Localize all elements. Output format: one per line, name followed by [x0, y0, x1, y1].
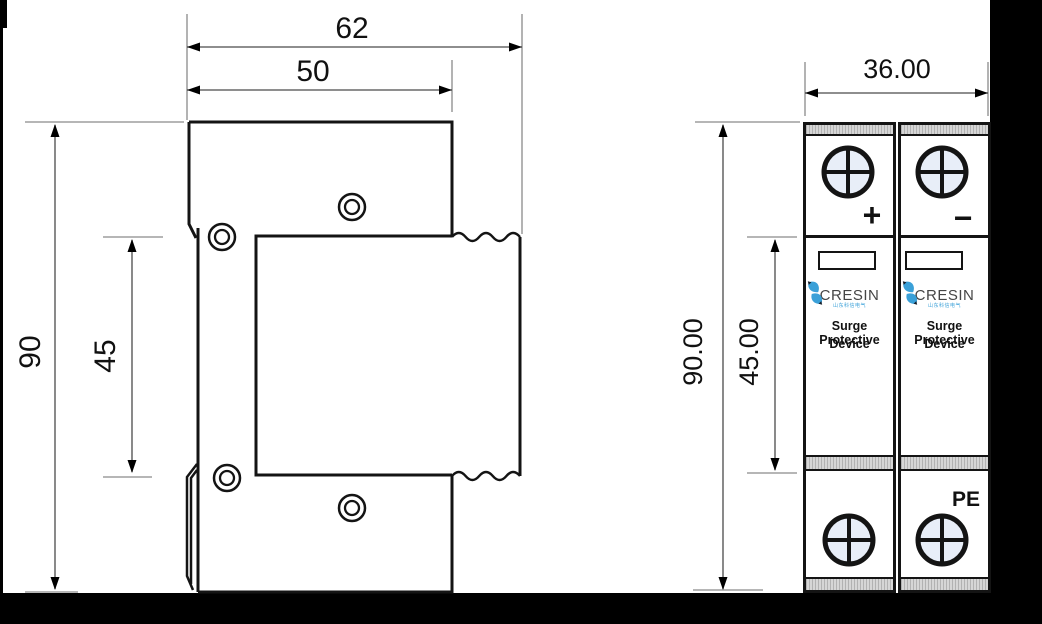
brand-subtext: 山东科信电气	[928, 304, 961, 309]
pe-terminal-label: PE	[952, 488, 980, 512]
dim-label-45-front: 45.00	[734, 318, 764, 386]
terminal-screw-icon	[821, 512, 877, 568]
status-window	[818, 251, 876, 270]
module-release-strip	[901, 455, 988, 471]
brand-name: CRESIN	[820, 288, 880, 303]
section-divider	[901, 235, 988, 238]
side-din-clip-inner	[191, 470, 197, 584]
dim-label-90-side: 90	[14, 335, 47, 368]
side-screw-top-right	[339, 194, 365, 220]
polarity-minus-label: −	[949, 202, 977, 234]
side-screw-top-left	[209, 224, 235, 250]
section-divider	[806, 235, 893, 238]
module-release-strip	[806, 455, 893, 471]
side-screw-bottom-right	[339, 495, 365, 521]
dim-label-62: 62	[335, 12, 368, 45]
terminal-screw-icon	[914, 144, 970, 200]
polarity-plus-label: +	[858, 199, 886, 231]
side-view: 62 50 90 45	[14, 12, 522, 592]
device-label-line2: Device	[806, 337, 893, 351]
dim-label-36: 36.00	[863, 54, 931, 84]
side-screw-bottom-left	[214, 465, 240, 491]
brand-block: CRESIN 山东科信电气	[901, 280, 988, 316]
side-body-top-rect	[189, 122, 452, 236]
side-left-edge-hook	[189, 122, 196, 238]
brand-subtext: 山东科信电气	[833, 304, 866, 309]
spd-module-plus: + CRESIN 山东科信电气 Surge Protective Device	[803, 122, 896, 593]
side-break-top	[452, 233, 520, 241]
dim-label-45-side: 45	[89, 339, 122, 372]
brand-block: CRESIN 山东科信电气	[806, 280, 893, 316]
spd-module-minus: − CRESIN 山东科信电气 Surge Protective Device …	[898, 122, 991, 593]
dim-label-50: 50	[296, 55, 329, 88]
mounting-strip	[806, 577, 893, 590]
terminal-screw-icon	[914, 512, 970, 568]
mounting-strip	[901, 577, 988, 590]
cresin-logo-icon	[806, 280, 824, 306]
drawing-canvas: 62 50 90 45 36.00 90.00 45.00 +	[0, 0, 1042, 624]
mounting-strip	[806, 125, 893, 136]
brand-name: CRESIN	[915, 288, 975, 303]
side-bottom-rect	[198, 476, 452, 592]
side-module-rect	[256, 236, 452, 475]
terminal-screw-icon	[820, 144, 876, 200]
mounting-strip	[901, 125, 988, 136]
ext-lines-side	[25, 14, 522, 592]
status-window	[905, 251, 963, 270]
side-break-bottom	[452, 472, 520, 480]
cresin-logo-icon	[901, 280, 919, 306]
device-label-line2: Device	[901, 337, 988, 351]
dim-label-90-front: 90.00	[678, 318, 708, 386]
